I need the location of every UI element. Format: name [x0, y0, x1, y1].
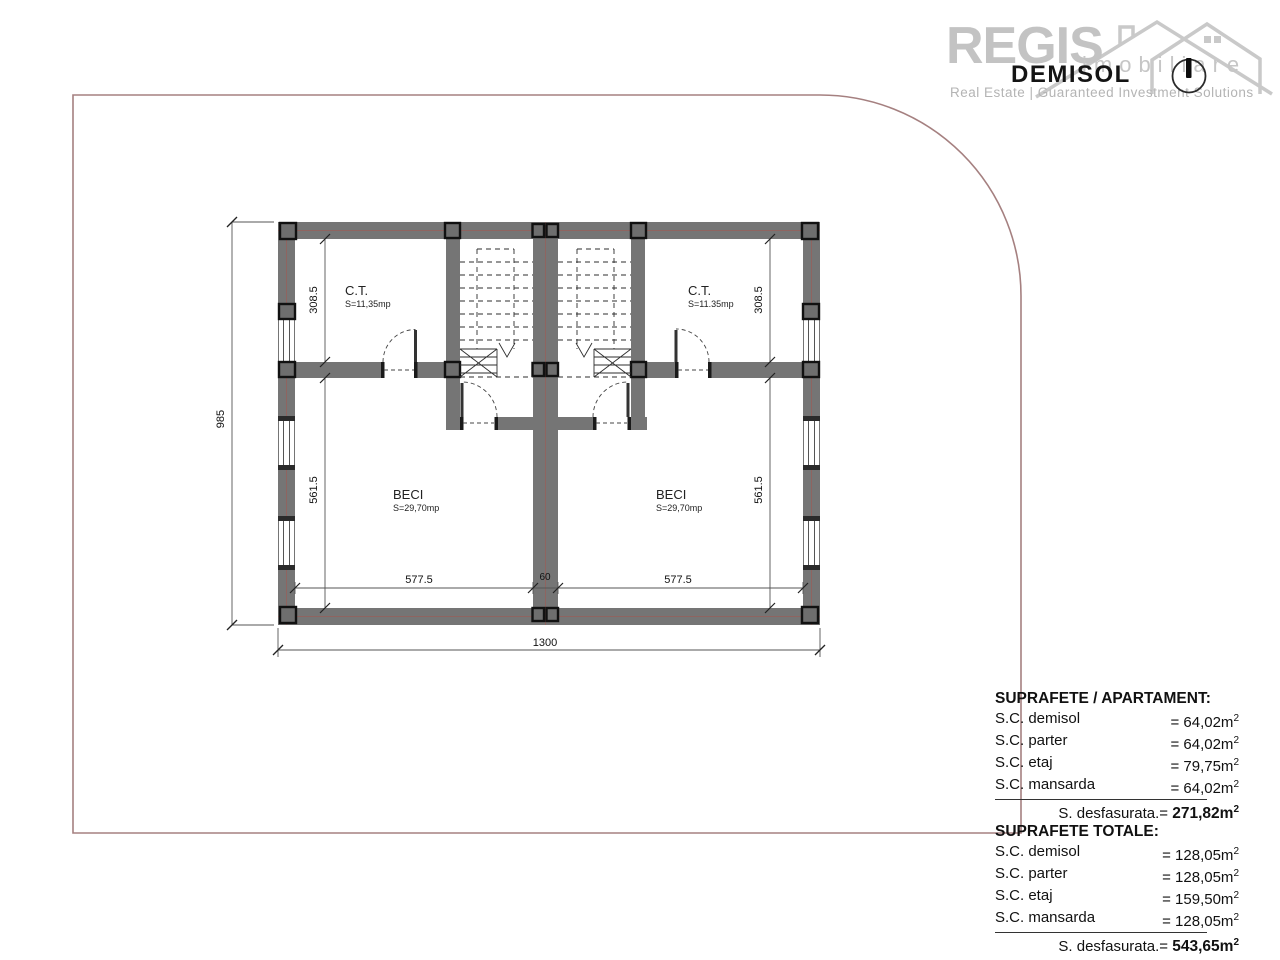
- dim-left-upper: 308.5: [308, 286, 320, 314]
- table-suprafete-apartament: SUPRAFETE / APARTAMENT: S.C. demisol = 6…: [995, 690, 1239, 823]
- table-row: S.C. etaj = 159,50m2: [995, 887, 1239, 909]
- table-row: S.C. parter = 64,02m2: [995, 732, 1239, 754]
- dim-total-height: 985: [215, 410, 227, 428]
- dim-right-lower: 561.5: [753, 476, 765, 504]
- room-ct-left-area: S=11,35mp: [345, 299, 391, 309]
- dim-total-width: 1300: [533, 637, 557, 649]
- floor-plan-sheet: 985 1300 308.5 561.5 308.5 561.5 577.5 6…: [0, 0, 1280, 960]
- table-suprafete-totale: SUPRAFETE TOTALE: S.C. demisol = 128,05m…: [995, 823, 1239, 956]
- dimension-labels: 985 1300 308.5 561.5 308.5 561.5 577.5 6…: [215, 286, 765, 649]
- table-row: S.C. mansarda = 64,02m2: [995, 776, 1239, 798]
- table-row: S.C. mansarda = 128,05m2: [995, 909, 1239, 931]
- dimension-lines: [227, 217, 825, 657]
- dim-bottom-left: 577.5: [405, 574, 433, 586]
- table-row: S.C. parter = 128,05m2: [995, 865, 1239, 887]
- north-indicator-icon: [1168, 54, 1212, 98]
- dim-bottom-right: 577.5: [664, 574, 692, 586]
- dim-right-upper: 308.5: [753, 286, 765, 314]
- table-total-row: S. desfasurata.= 271,82m2: [995, 800, 1239, 823]
- table-title: SUPRAFETE TOTALE:: [995, 823, 1239, 841]
- room-ct-left: C.T.: [345, 283, 368, 298]
- room-beci-left-area: S=29,70mp: [393, 503, 439, 513]
- room-beci-left: BECI: [393, 487, 423, 502]
- table-row: S.C. demisol = 64,02m2: [995, 710, 1239, 732]
- dim-bottom-center: 60: [539, 572, 551, 583]
- room-ct-right: C.T.: [688, 283, 711, 298]
- room-beci-right: BECI: [656, 487, 686, 502]
- room-beci-right-area: S=29,70mp: [656, 503, 702, 513]
- table-total-row: S. desfasurata.= 543,65m2: [995, 933, 1239, 956]
- page-title: DEMISOL: [1011, 61, 1131, 89]
- room-ct-right-area: S=11.35mp: [688, 299, 734, 309]
- table-row: S.C. demisol = 128,05m2: [995, 843, 1239, 865]
- table-title: SUPRAFETE / APARTAMENT:: [995, 690, 1239, 708]
- table-row: S.C. etaj = 79,75m2: [995, 754, 1239, 776]
- staircase-right: [558, 249, 631, 377]
- dim-left-lower: 561.5: [308, 476, 320, 504]
- staircase-left: [460, 249, 533, 377]
